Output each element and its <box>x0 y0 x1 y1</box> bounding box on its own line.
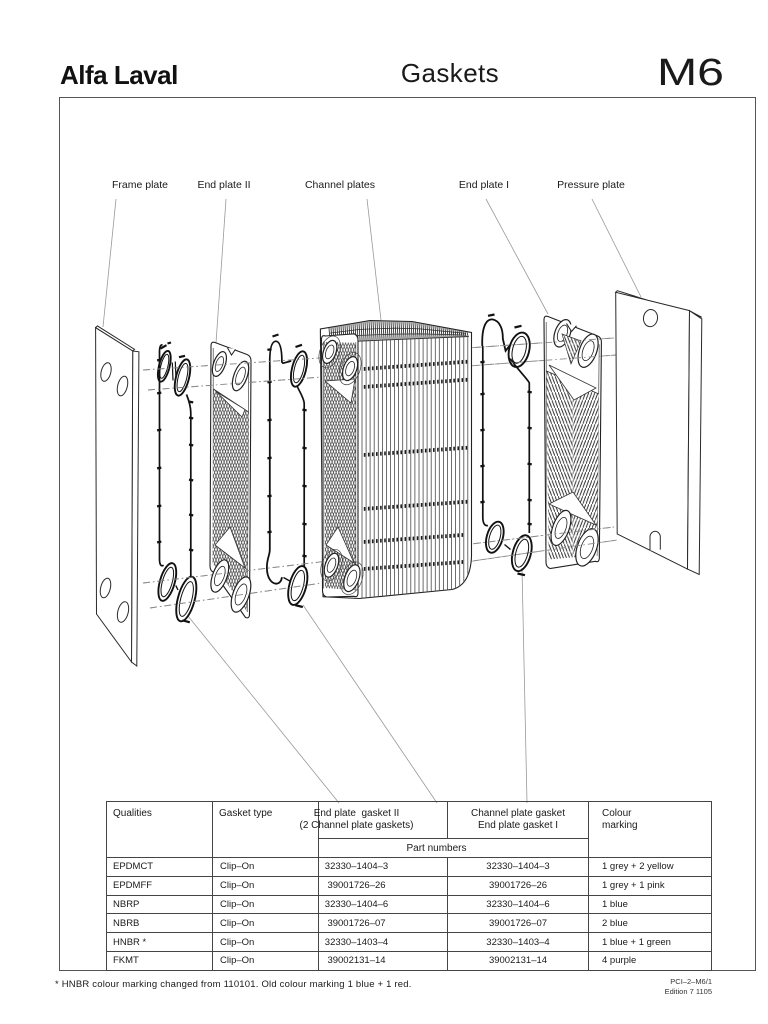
svg-text:End plate II: End plate II <box>197 179 250 191</box>
svg-text:Pressure plate: Pressure plate <box>557 179 625 191</box>
svg-text:End plate I: End plate I <box>459 179 509 191</box>
svg-text:Channel plates: Channel plates <box>305 179 375 191</box>
svg-text:Frame plate: Frame plate <box>112 179 168 191</box>
